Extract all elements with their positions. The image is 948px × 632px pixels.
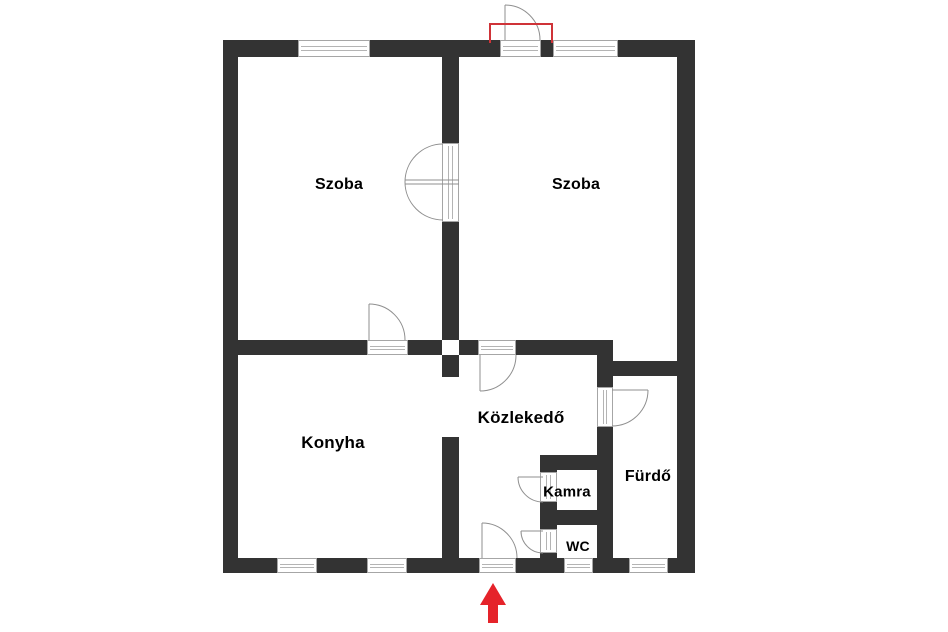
door-swing [505,5,540,40]
door-swing [369,304,405,340]
door-swing [612,390,648,426]
door-swing [518,477,543,502]
door-swing [482,523,517,558]
door-swing [405,182,443,220]
door-swing [521,531,543,553]
door-leaf [405,180,459,184]
highlighted-door-marker [490,24,552,43]
door-swing [405,144,443,182]
floor-plan: Szoba Szoba Konyha Közlekedő Kamra Fürdő… [0,0,948,632]
door-swing [480,355,516,391]
entrance-arrow-icon [480,583,506,623]
plan-overlay [0,0,948,632]
